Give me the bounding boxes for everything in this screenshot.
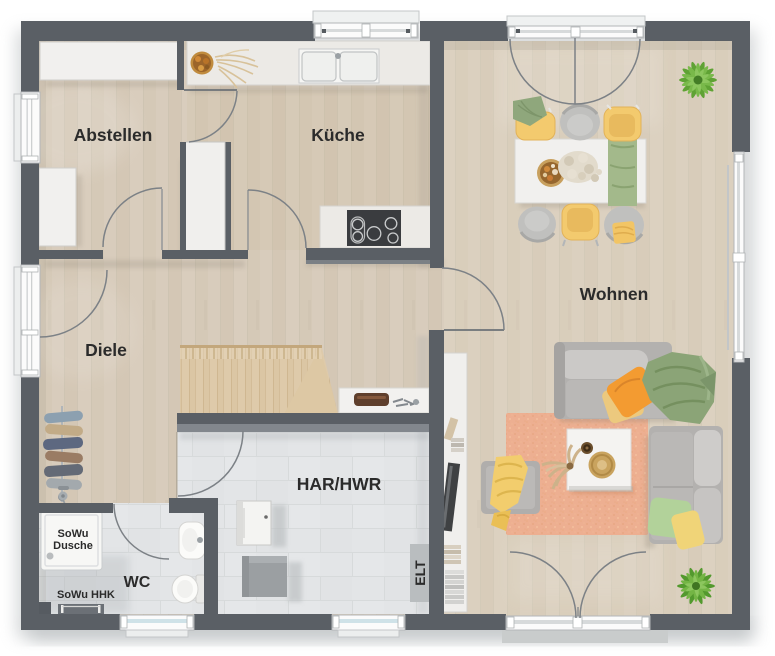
svg-text:ELT: ELT [412, 560, 428, 586]
svg-text:Abstellen: Abstellen [74, 125, 153, 145]
svg-text:Küche: Küche [311, 125, 365, 145]
svg-text:SoWu: SoWu [58, 528, 89, 540]
svg-text:Dusche: Dusche [53, 540, 93, 552]
svg-text:HAR/HWR: HAR/HWR [297, 474, 382, 494]
svg-text:Diele: Diele [85, 340, 127, 360]
svg-text:SoWu HHK: SoWu HHK [57, 589, 115, 601]
svg-text:Wohnen: Wohnen [580, 284, 649, 304]
svg-text:WC: WC [124, 574, 151, 591]
